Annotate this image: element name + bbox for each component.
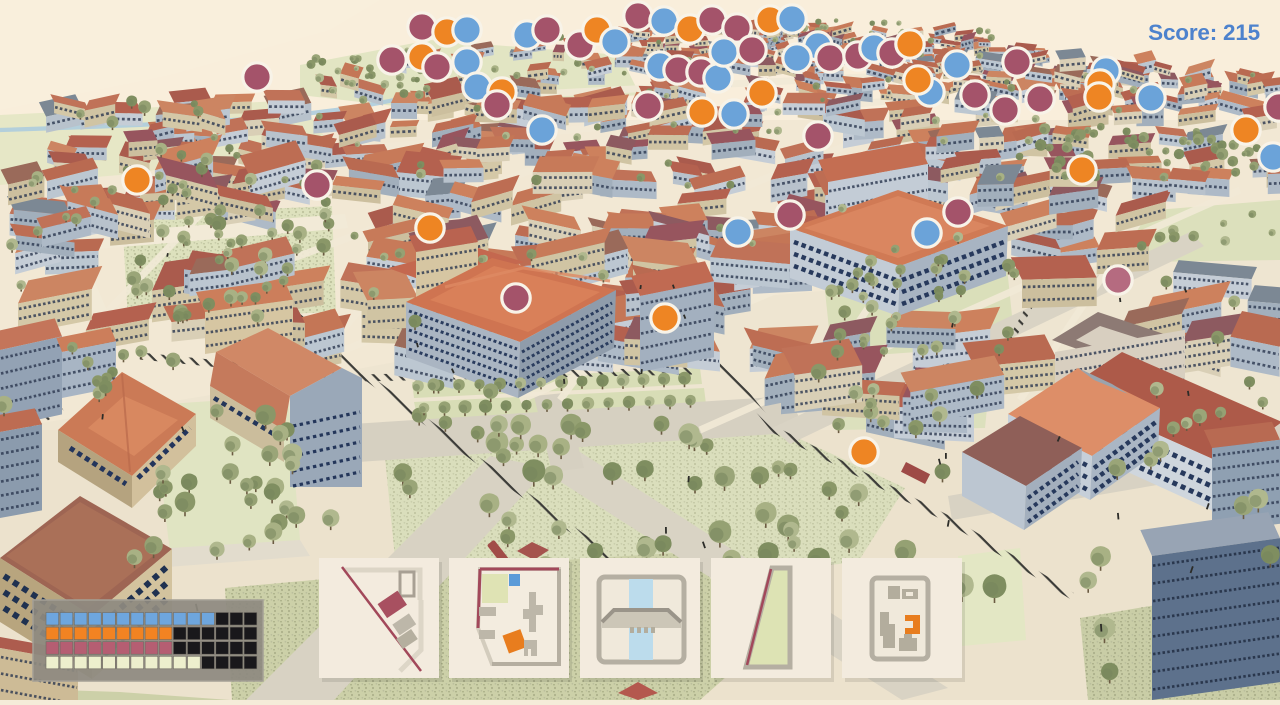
svg-text:Score: 215: Score: 215: [1148, 20, 1260, 45]
